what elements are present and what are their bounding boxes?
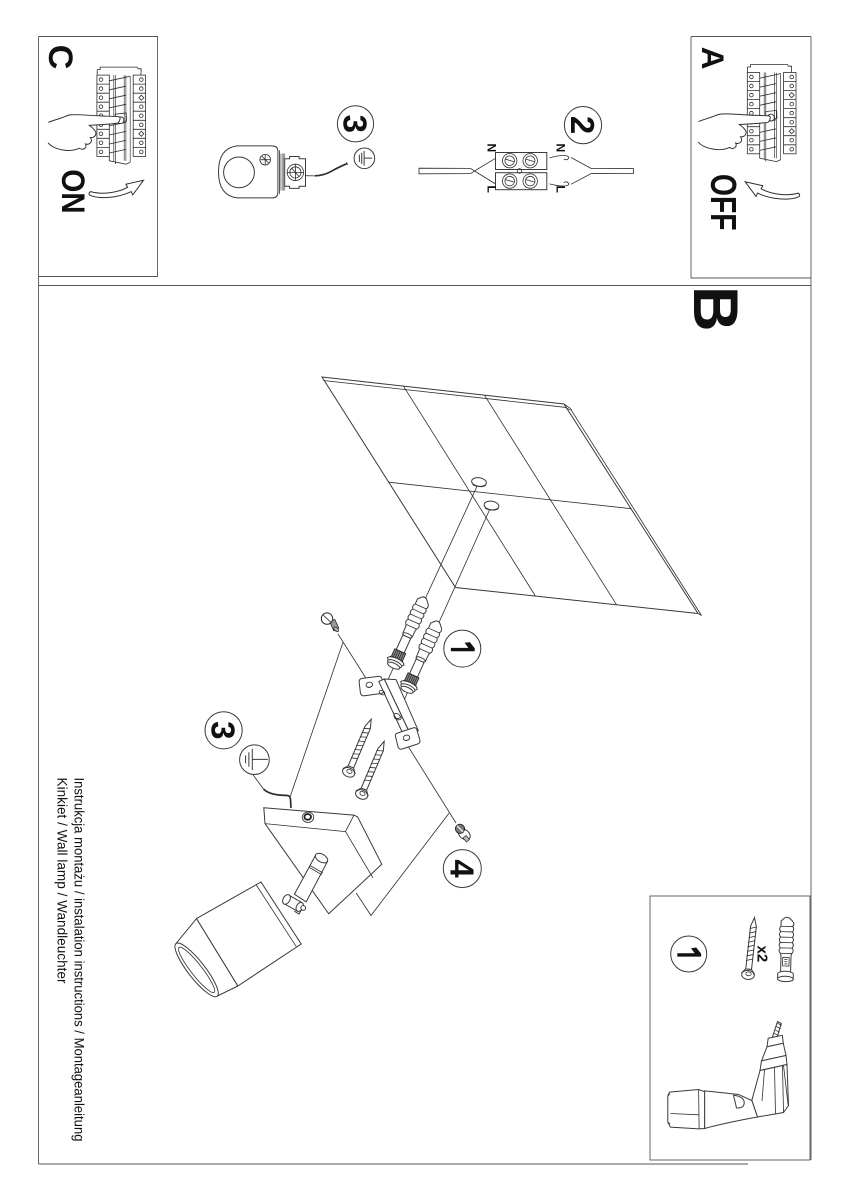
- svg-text:L: L: [485, 186, 499, 193]
- svg-text:Kinkiet / Wall lamp / Wandleuc: Kinkiet / Wall lamp / Wandleuchter: [55, 778, 70, 985]
- svg-text:Instrukcja montażu / instalati: Instrukcja montażu / instalation instruc…: [72, 778, 87, 1142]
- svg-text:OFF: OFF: [703, 174, 744, 231]
- svg-text:2: 2: [564, 116, 601, 134]
- svg-text:N: N: [485, 144, 499, 153]
- svg-text:N: N: [554, 144, 568, 153]
- svg-text:B: B: [680, 286, 750, 332]
- svg-text:3: 3: [205, 721, 242, 739]
- svg-text:L: L: [554, 186, 568, 193]
- svg-text:3: 3: [337, 115, 374, 133]
- svg-text:ON: ON: [55, 169, 91, 214]
- svg-text:A: A: [695, 47, 731, 70]
- svg-text:C: C: [41, 45, 79, 70]
- svg-text:4: 4: [443, 859, 480, 878]
- svg-text:x2: x2: [754, 946, 771, 963]
